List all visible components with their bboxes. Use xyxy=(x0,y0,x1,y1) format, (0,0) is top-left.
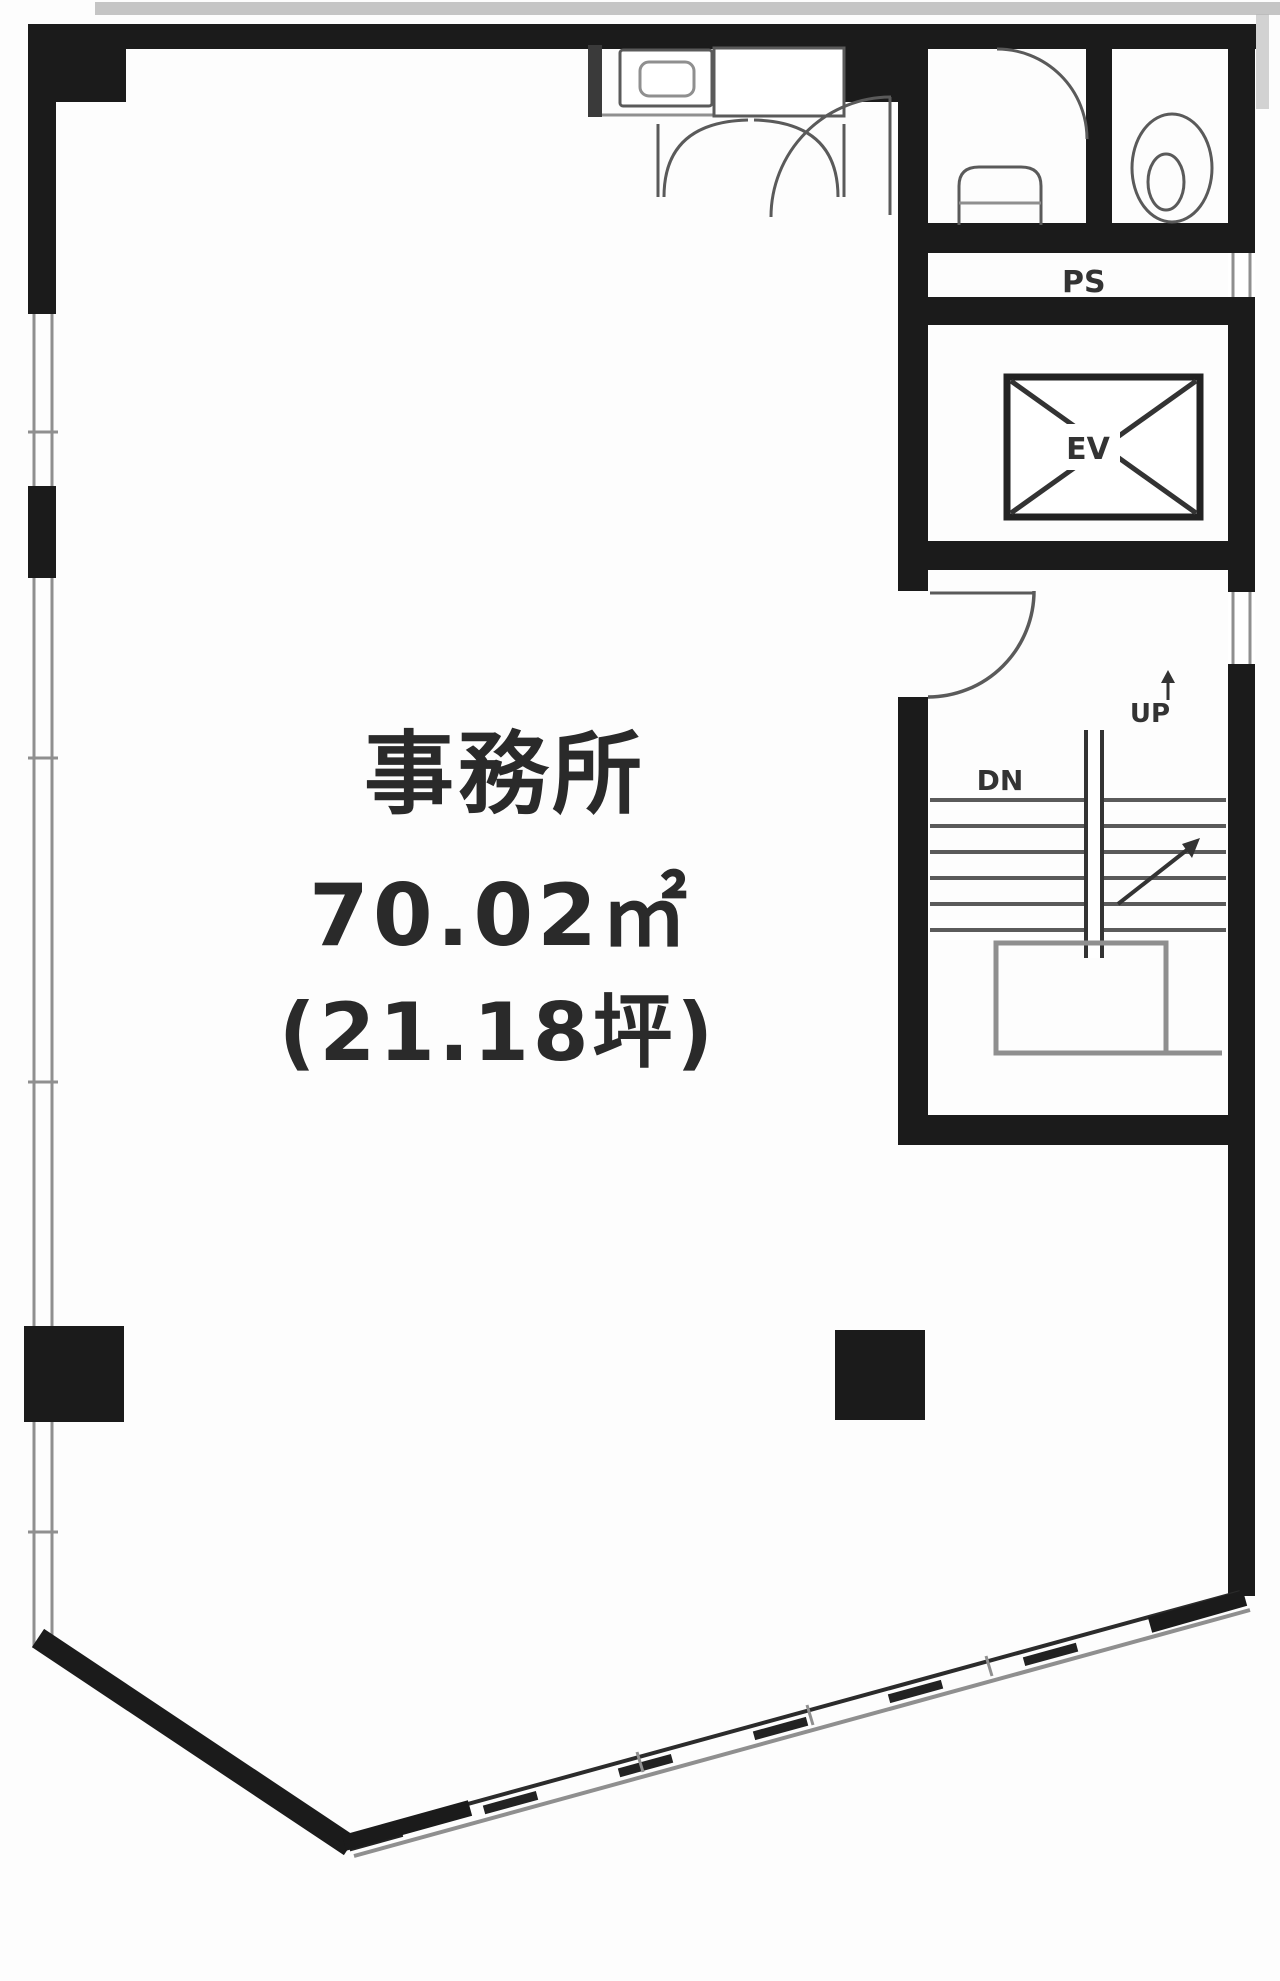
washroom-partition xyxy=(588,45,602,117)
right-wall-segment xyxy=(1228,664,1255,1596)
toilet xyxy=(959,167,1041,225)
stairs-up-label: UP xyxy=(1130,699,1170,729)
floor-plan-page: PS EV UP DN 事務所 70.02㎡ (21.18坪) xyxy=(0,0,1280,1981)
bottom-left-diagonal-wall xyxy=(38,1638,350,1846)
scan-shadow-right xyxy=(1256,14,1269,109)
stairs-down-label: DN xyxy=(977,764,1024,797)
stair-direction-arrow xyxy=(1118,846,1192,904)
bottom-window-line-outer xyxy=(344,1592,1240,1838)
pipe-shaft-label: PS xyxy=(1062,265,1106,300)
bottom-window-mullions xyxy=(349,1601,1245,1847)
wc-divider-wall xyxy=(1086,24,1112,224)
left-wall-pillar xyxy=(24,1326,124,1422)
door-swing-arc xyxy=(664,120,748,197)
left-wall-segment xyxy=(28,486,56,578)
office-room-labels: 事務所 70.02㎡ (21.18坪) xyxy=(279,722,717,1079)
core-left-wall-lower xyxy=(898,697,928,1145)
stair-door-arc xyxy=(928,591,1034,697)
room-name-label: 事務所 xyxy=(364,722,646,827)
stair-rail-backing xyxy=(1086,730,1102,958)
wall-below-ev xyxy=(898,541,1255,570)
toilet xyxy=(1132,114,1212,222)
elevator-label: EV xyxy=(1066,432,1110,467)
scan-shadow-top xyxy=(95,2,1280,15)
right-wall-segment xyxy=(1228,297,1255,592)
bottom-window-line-inner xyxy=(354,1610,1250,1856)
wall-below-stairs xyxy=(898,1115,1255,1145)
wc-room-left xyxy=(959,49,1087,225)
bottom-boundary xyxy=(38,1592,1250,1856)
stair-hall: UP DN xyxy=(928,591,1226,1053)
room-area-tsubo-label: (21.18坪) xyxy=(279,986,717,1079)
stair-landing xyxy=(996,943,1166,1053)
counter xyxy=(714,48,844,116)
wc-room-right xyxy=(1132,114,1212,222)
door-swing-arc xyxy=(754,120,838,197)
toilet-bowl xyxy=(1148,154,1184,210)
free-standing-pillar xyxy=(835,1330,925,1420)
wc-door-arc xyxy=(997,49,1087,139)
room-area-label: 70.02㎡ xyxy=(309,866,691,966)
elevator: EV xyxy=(1007,377,1200,517)
right-wall-segment xyxy=(1228,24,1255,253)
bottom-wall-solid-left xyxy=(344,1808,470,1843)
floor-plan-drawing: PS EV UP DN 事務所 70.02㎡ (21.18坪) xyxy=(0,0,1280,1981)
stair-direction-arrow-head xyxy=(1182,838,1200,858)
up-arrow-head xyxy=(1161,670,1175,683)
left-wall-segment xyxy=(28,24,56,314)
washbasin xyxy=(620,50,712,106)
wall-below-ps xyxy=(898,297,1255,325)
wall-below-wc xyxy=(898,223,1255,253)
top-wall xyxy=(30,24,1256,49)
